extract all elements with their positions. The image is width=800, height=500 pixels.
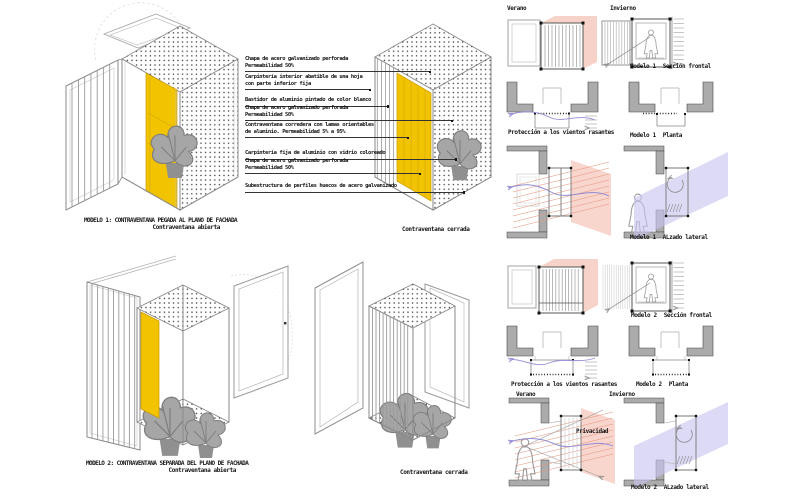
m1-section-caption: Modelo 1 Sección frontal	[630, 63, 711, 70]
annotation-text: Bastidor de aluminio pintado de color bl…	[245, 97, 388, 104]
leader-dot	[369, 89, 371, 91]
season-label-summer-m2: Verano	[516, 391, 535, 398]
model1-title: MODELO 1: CONTRAVENTANA PEGADA AL PLANO …	[84, 217, 226, 224]
back-frame-portal	[315, 262, 363, 434]
axon-model2-closed-drawing	[305, 246, 490, 461]
caption-model: Modelo 2	[636, 381, 662, 388]
annotation-text: Carpintería fija de aluminio con vidrio …	[245, 150, 456, 157]
caption-view: ALzado lateral	[663, 234, 708, 241]
caption-view: Sección frontal	[663, 63, 711, 70]
caption-model: Modelo 2	[631, 484, 657, 491]
annotation-text: Permeabilidad 50%	[245, 63, 430, 70]
season-label-summer-m1: Verano	[507, 5, 526, 12]
annotation-text: Chapa de acero galvanizado perforada	[245, 105, 452, 112]
m2-winter-side-diagram	[618, 398, 733, 486]
annotation-text: de aluminio. Permeabilidad 5% a 95%	[245, 129, 408, 136]
model2-open-caption: Contraventana abierta	[86, 467, 242, 474]
caption-view: Planta	[663, 132, 682, 139]
caption-view: Sección frontal	[664, 312, 712, 319]
model1-closed-caption: Contraventana cerrada	[402, 226, 469, 233]
privacy-label: Privacidad	[576, 428, 608, 435]
yellow-door	[141, 312, 159, 418]
architecture-sheet: { "colors": { "accent_yellow": "#F2C300"…	[0, 0, 800, 500]
m1-summer-side-diagram	[503, 146, 615, 238]
caption-view: Planta	[669, 381, 688, 388]
annotation-text: Permeabilidad 50%	[245, 112, 452, 119]
caption-view: ALzado lateral	[664, 484, 709, 491]
caption-model: Modelo 1	[630, 63, 656, 70]
m2-section-caption: Modelo 2 Sección frontal	[631, 312, 712, 319]
m2-summer-side-diagram	[503, 398, 618, 486]
annotation-perforated-sheet-3: Chapa de acero galvanizado perforada Per…	[245, 158, 420, 174]
annotation-text: Chapa de acero galvanizado perforada	[245, 158, 420, 165]
wind-protection-label-m2: Protección a los vientos rasantes	[511, 381, 617, 388]
annotation-substructure: Subestructura de perfiles huecos de acer…	[245, 183, 464, 193]
m2-plan-diagram	[627, 324, 715, 382]
leader-dot	[463, 191, 465, 193]
season-label-winter-m1: Invierno	[610, 5, 636, 12]
leader-dot	[455, 158, 457, 160]
annotation-text: Contraventana corredera con lamas orient…	[245, 122, 408, 129]
annotation-text: Chapa de acero galvanizado perforada	[245, 56, 430, 63]
wind-protection-label-m1: Protección a los vientos rasantes	[508, 129, 614, 136]
m1-wind-plan-diagram	[505, 80, 600, 132]
sliding-louver-screen	[87, 282, 140, 450]
season-label-winter-m2: Invierno	[609, 391, 635, 398]
m2-summer-front-diagram	[505, 257, 600, 317]
caption-model: Modelo 2	[631, 312, 657, 319]
annotation-interior-carpentry: Carpintería interior abatible de una hoj…	[245, 74, 370, 90]
annotation-sliding-shutter: Contraventana corredera con lamas orient…	[245, 122, 408, 138]
open-louver-shutter	[66, 59, 122, 210]
axon-model2-open-drawing	[66, 246, 301, 458]
axon-model1-open-drawing	[52, 8, 247, 220]
m2-winter-front-diagram	[600, 257, 696, 317]
annotation-text: con parte inferior fija	[245, 81, 370, 88]
model1-open-caption: Contraventana abierta	[84, 224, 226, 231]
model2-title: MODELO 2: CONTRAVENTANA SEPARADA DEL PLA…	[86, 460, 242, 467]
annotation-perforated-sheet-2: Chapa de acero galvanizado perforada Per…	[245, 105, 452, 121]
open-glass-door	[234, 266, 288, 398]
model1-caption: MODELO 1: CONTRAVENTANA PEGADA AL PLANO …	[84, 217, 226, 231]
model2-caption: MODELO 2: CONTRAVENTANA SEPARADA DEL PLA…	[86, 460, 242, 474]
annotation-text: Permeabilidad 50%	[245, 165, 420, 172]
annotation-perforated-sheet-1: Chapa de acero galvanizado perforada Per…	[245, 56, 430, 72]
annotation-text: Subestructura de perfiles huecos de acer…	[245, 183, 464, 190]
m1-plan-caption: Modelo 1 Planta	[630, 132, 682, 139]
m2-side-caption: Modelo 2 ALzado lateral	[631, 484, 709, 491]
m2-plan-caption: Modelo 2 Planta	[636, 381, 688, 388]
m1-side-caption: Modelo 1 ALzado lateral	[630, 234, 708, 241]
caption-model: Modelo 1	[630, 234, 656, 241]
caption-model: Modelo 1	[630, 132, 656, 139]
m1-summer-front-diagram	[505, 13, 600, 73]
annotation-text: Carpintería interior abatible de una hoj…	[245, 74, 370, 81]
m1-plan-diagram	[627, 80, 715, 132]
m2-wind-plan-diagram	[505, 324, 600, 382]
leader-dot	[419, 173, 421, 175]
m1-winter-side-diagram	[620, 146, 732, 238]
leader-dot	[407, 137, 409, 139]
model2-closed-caption: Contraventana cerrada	[400, 469, 467, 476]
leader-dot	[451, 120, 453, 122]
leader-dot	[429, 71, 431, 73]
